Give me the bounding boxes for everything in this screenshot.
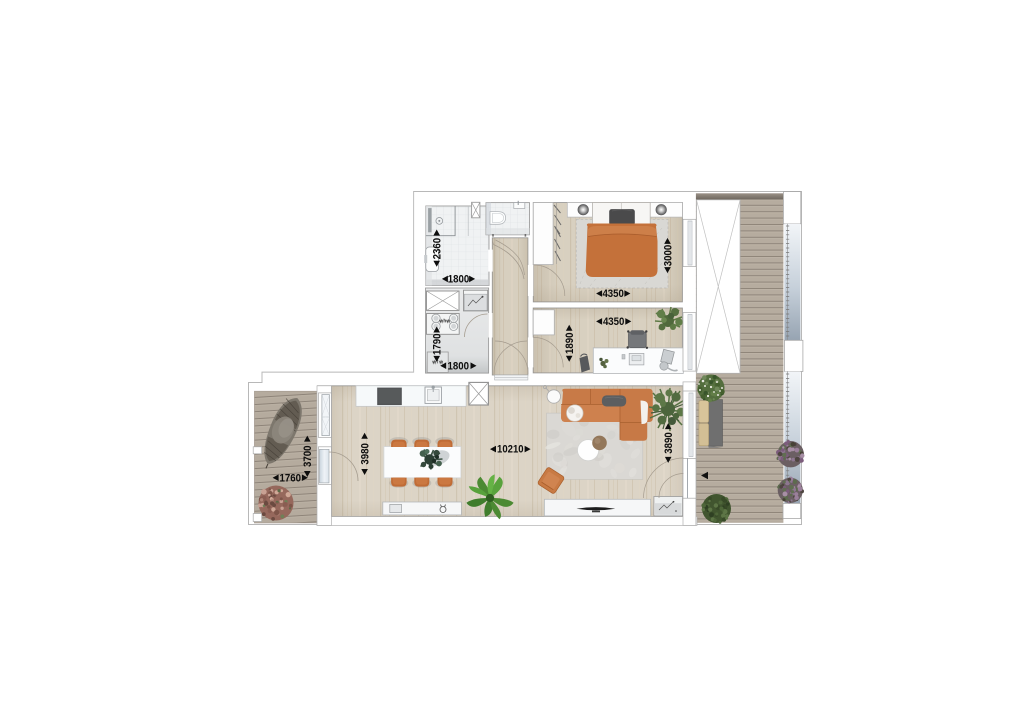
svg-text:1890: 1890	[564, 332, 576, 354]
svg-text:3700: 3700	[302, 446, 314, 468]
svg-text:1800: 1800	[448, 360, 470, 372]
svg-text:2360: 2360	[432, 238, 444, 260]
svg-text:1760: 1760	[280, 472, 302, 484]
svg-text:1800: 1800	[448, 274, 470, 286]
svg-text:10210: 10210	[497, 444, 524, 456]
svg-text:4350: 4350	[603, 316, 625, 328]
svg-text:3980: 3980	[360, 443, 372, 465]
svg-text:1790: 1790	[432, 333, 444, 355]
svg-text:4350: 4350	[602, 288, 624, 300]
svg-text:3890: 3890	[663, 432, 675, 454]
svg-text:3000: 3000	[662, 245, 674, 267]
